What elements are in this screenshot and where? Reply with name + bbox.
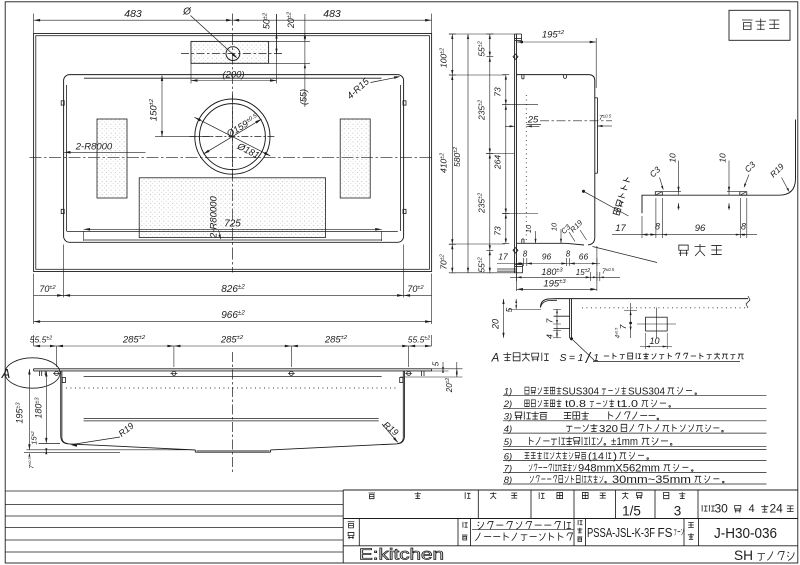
svg-text:1: 1 [578, 352, 584, 364]
svg-text:SH: SH [734, 548, 753, 563]
svg-text:S: S [559, 352, 566, 364]
svg-text:1): 1) [504, 386, 512, 397]
svg-text:SUS304: SUS304 [562, 386, 599, 397]
svg-text:8): 8) [504, 475, 512, 486]
svg-text:3: 3 [674, 504, 682, 519]
svg-text:5: 5 [504, 307, 514, 312]
svg-text:66: 66 [579, 252, 589, 262]
svg-text:17: 17 [615, 223, 626, 234]
svg-text:4): 4) [504, 424, 512, 435]
svg-text:96: 96 [695, 223, 706, 234]
svg-text:1/5: 1/5 [622, 504, 641, 519]
svg-text:73: 73 [493, 87, 503, 97]
svg-text:948mmX562mm: 948mmX562mm [578, 462, 660, 474]
svg-text:264: 264 [493, 155, 503, 170]
svg-text:7): 7) [504, 463, 512, 474]
svg-text:20: 20 [491, 319, 501, 330]
svg-text:30: 30 [715, 502, 729, 516]
svg-text:2): 2) [503, 399, 512, 410]
svg-text:FS: FS [658, 526, 673, 540]
svg-text:3): 3) [504, 412, 512, 423]
svg-text:(55): (55) [299, 89, 309, 105]
svg-text:2-R80000: 2-R80000 [209, 196, 220, 239]
svg-text:8: 8 [523, 250, 528, 259]
svg-text:A: A [1, 366, 11, 381]
svg-text:=: = [569, 352, 575, 364]
svg-text:J-H30-036: J-H30-036 [714, 526, 777, 542]
svg-text:A: A [491, 353, 500, 365]
svg-text:25: 25 [527, 115, 539, 126]
svg-text:8: 8 [741, 222, 746, 232]
svg-text:10: 10 [718, 153, 728, 163]
svg-text:10: 10 [649, 336, 659, 346]
svg-text:10: 10 [550, 222, 559, 231]
svg-text:±1mm: ±1mm [611, 436, 638, 448]
svg-text:5: 5 [432, 361, 441, 366]
svg-text:4: 4 [749, 503, 755, 515]
svg-text:725: 725 [224, 219, 241, 230]
svg-text:5): 5) [504, 437, 512, 448]
svg-text:7: 7 [545, 318, 555, 323]
svg-text:24: 24 [770, 502, 784, 516]
svg-text:t1.0: t1.0 [617, 398, 638, 410]
svg-text:483: 483 [124, 8, 142, 20]
svg-text:t0.8: t0.8 [565, 398, 586, 410]
svg-text:30mm~35mm: 30mm~35mm [612, 474, 691, 486]
svg-text:17: 17 [498, 252, 508, 262]
svg-text:8: 8 [655, 222, 660, 232]
svg-text:SUS304: SUS304 [628, 386, 665, 397]
svg-text:4: 4 [545, 334, 555, 339]
svg-text:96: 96 [542, 252, 552, 262]
svg-text:1: 1 [593, 352, 599, 364]
svg-text:PSSA-JSL-K-3F: PSSA-JSL-K-3F [587, 526, 655, 540]
svg-text:7: 7 [618, 324, 628, 329]
svg-text:(200): (200) [222, 70, 244, 81]
svg-text:8: 8 [566, 250, 571, 259]
svg-text:(14: (14 [588, 450, 604, 462]
svg-text:10: 10 [524, 224, 533, 233]
svg-text:E:kitchen: E:kitchen [359, 547, 444, 564]
svg-text:6): 6) [504, 451, 512, 462]
svg-text:): ) [613, 450, 617, 462]
svg-text:73: 73 [493, 226, 503, 236]
svg-text:10: 10 [668, 153, 678, 163]
svg-text:320: 320 [599, 423, 618, 435]
svg-text:483: 483 [323, 8, 341, 20]
